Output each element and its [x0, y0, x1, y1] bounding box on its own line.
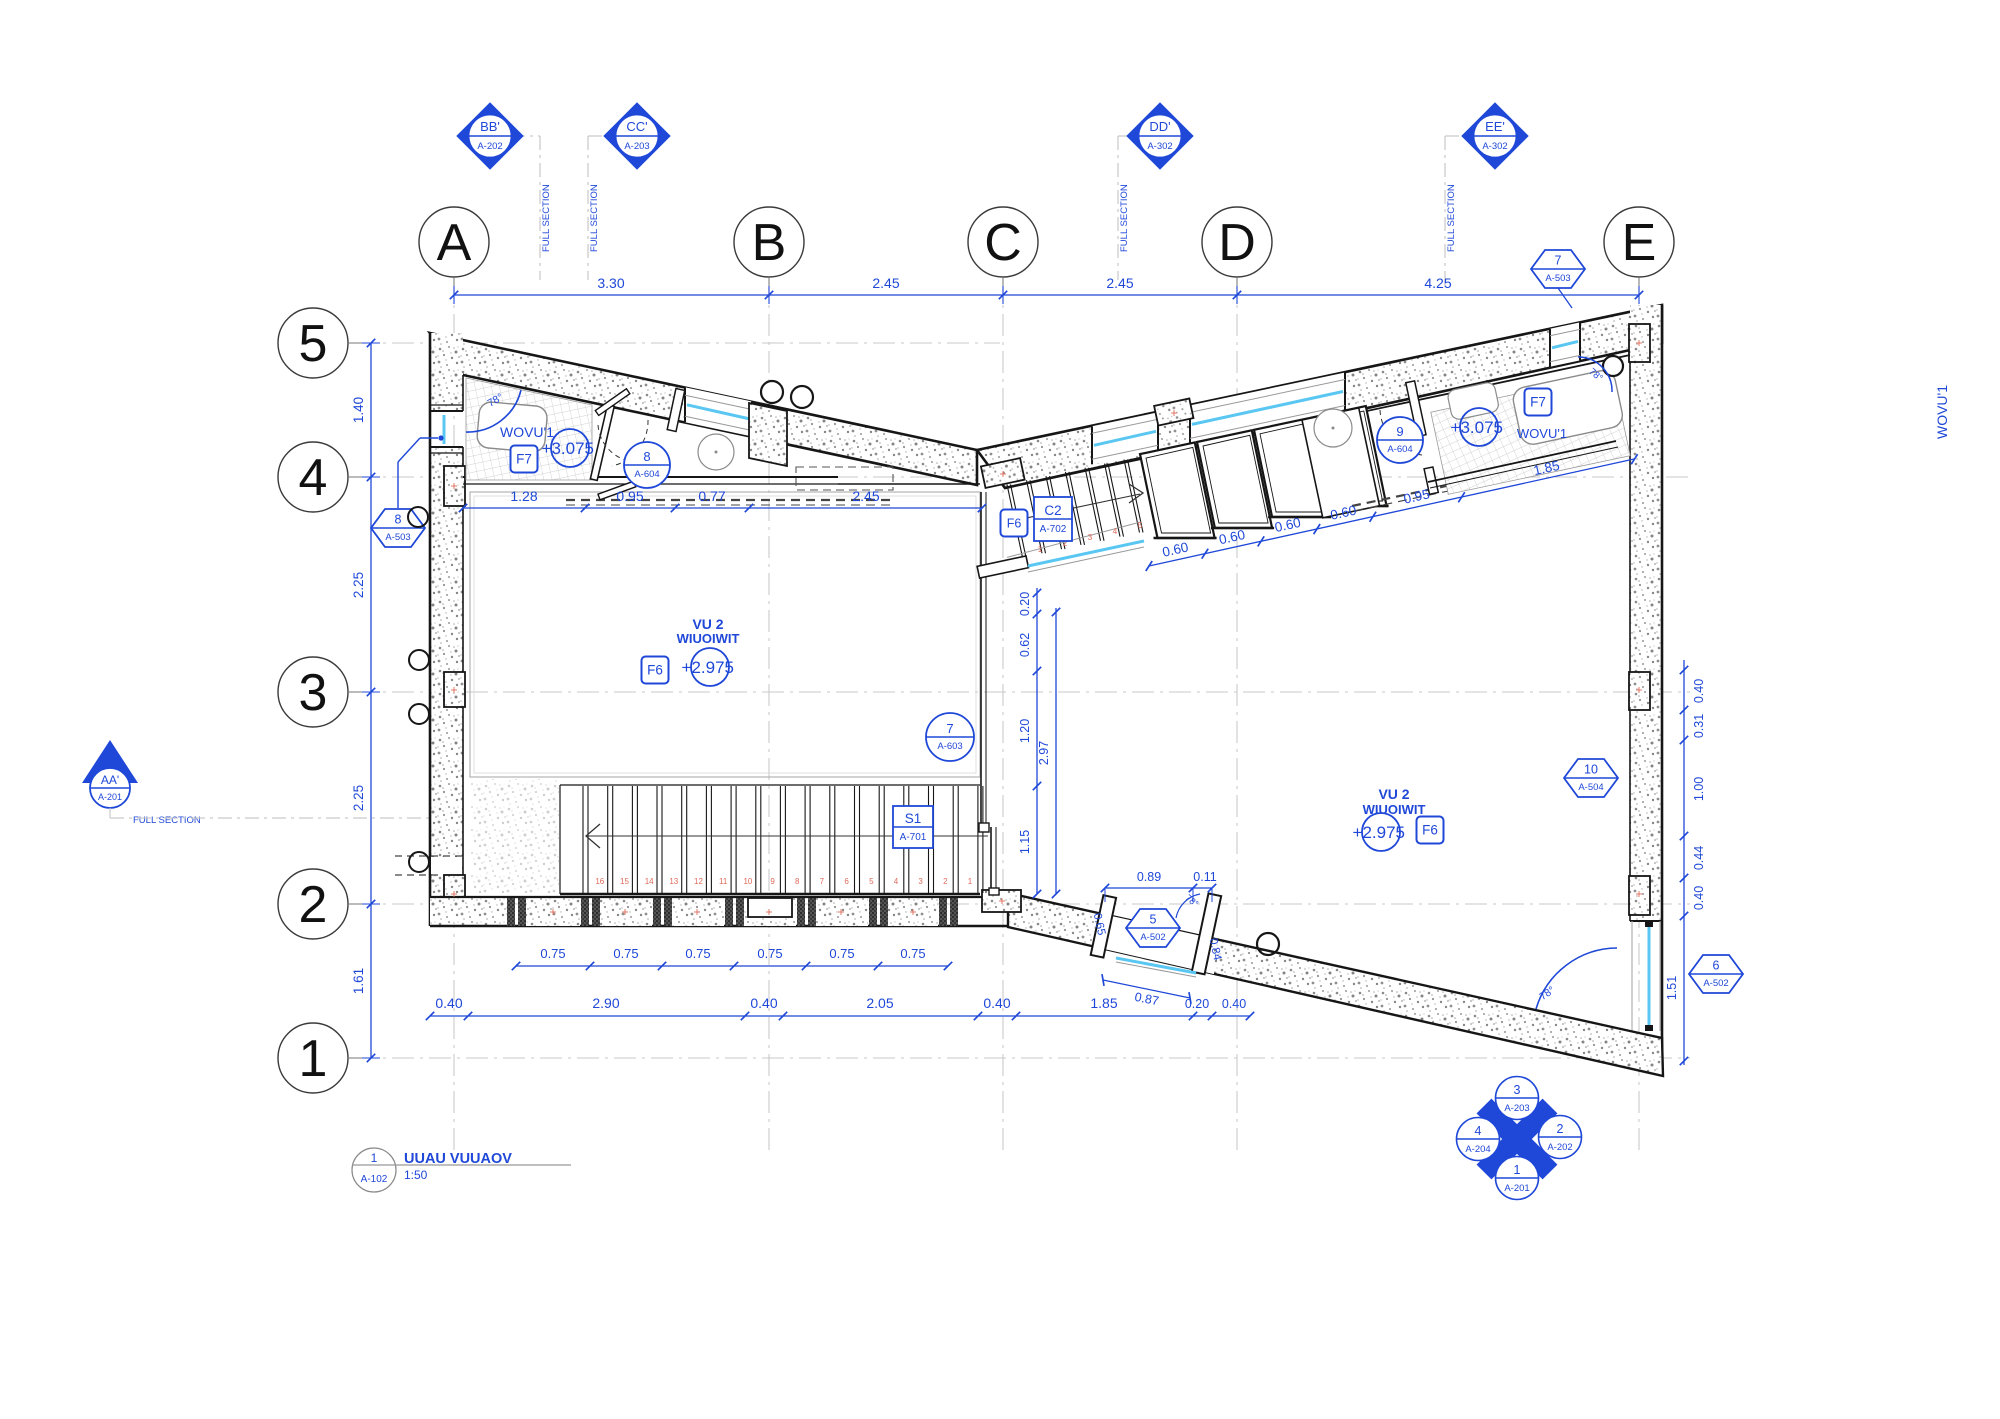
svg-text:1.20: 1.20 [1018, 719, 1032, 743]
svg-text:2: 2 [1557, 1122, 1564, 1136]
svg-text:0.75: 0.75 [540, 946, 565, 961]
svg-text:0.75: 0.75 [685, 946, 710, 961]
svg-text:0.89: 0.89 [1137, 870, 1161, 884]
svg-text:3: 3 [299, 664, 328, 722]
svg-text:WOVU'1: WOVU'1 [500, 424, 554, 440]
svg-text:0.40: 0.40 [1692, 679, 1706, 703]
svg-text:F7: F7 [516, 452, 532, 467]
svg-text:3: 3 [918, 877, 923, 886]
svg-text:A-203: A-203 [624, 141, 649, 152]
svg-text:10: 10 [743, 877, 752, 886]
svg-text:4: 4 [299, 449, 328, 507]
svg-text:10: 10 [1584, 763, 1598, 777]
svg-text:+2.975: +2.975 [1353, 823, 1405, 842]
svg-text:1: 1 [371, 1151, 378, 1165]
svg-text:+3.075: +3.075 [1451, 418, 1503, 437]
svg-text:2.90: 2.90 [592, 995, 619, 1011]
svg-text:1.00: 1.00 [1692, 777, 1706, 801]
svg-text:A-302: A-302 [1147, 141, 1172, 152]
svg-text:3: 3 [1088, 533, 1093, 542]
svg-text:2.97: 2.97 [1037, 741, 1051, 765]
svg-text:0.75: 0.75 [757, 946, 782, 961]
svg-text:WIUOIWIT: WIUOIWIT [677, 631, 740, 646]
svg-text:4: 4 [1475, 1124, 1482, 1138]
svg-text:1.85: 1.85 [1090, 995, 1117, 1011]
svg-text:A-604: A-604 [1387, 444, 1412, 455]
svg-text:A-502: A-502 [1140, 932, 1165, 943]
svg-text:A-203: A-203 [1504, 1103, 1529, 1114]
svg-text:F6: F6 [647, 663, 663, 678]
svg-text:1.61: 1.61 [351, 968, 366, 994]
svg-text:2.05: 2.05 [866, 995, 893, 1011]
svg-text:2.45: 2.45 [1106, 275, 1133, 291]
svg-text:A-604: A-604 [634, 469, 659, 480]
svg-text:VU 2: VU 2 [692, 616, 723, 632]
svg-text:7: 7 [946, 721, 953, 736]
svg-text:0.40: 0.40 [750, 995, 777, 1011]
svg-text:A-503: A-503 [385, 532, 410, 543]
svg-text:3.30: 3.30 [597, 275, 624, 291]
svg-text:9: 9 [770, 877, 775, 886]
svg-text:1.51: 1.51 [1665, 976, 1679, 1000]
svg-text:A-202: A-202 [477, 141, 502, 152]
svg-text:A: A [437, 214, 472, 272]
svg-text:A-701: A-701 [900, 832, 927, 843]
svg-text:4.25: 4.25 [1424, 275, 1451, 291]
svg-text:WOVU'1: WOVU'1 [1934, 385, 1950, 439]
svg-text:D: D [1218, 214, 1256, 272]
svg-text:0.77: 0.77 [698, 488, 725, 504]
svg-text:A-603: A-603 [937, 741, 962, 752]
svg-text:1.40: 1.40 [351, 397, 366, 423]
svg-text:A-201: A-201 [98, 792, 122, 802]
svg-text:7: 7 [820, 877, 825, 886]
svg-text:F6: F6 [1422, 823, 1438, 838]
svg-text:C: C [984, 214, 1022, 272]
svg-text:1: 1 [1514, 1163, 1521, 1177]
svg-text:CC': CC' [626, 119, 647, 134]
svg-text:0.40: 0.40 [1692, 886, 1706, 910]
svg-text:VU 2: VU 2 [1378, 786, 1409, 802]
svg-text:0.20: 0.20 [1018, 592, 1032, 616]
svg-text:14: 14 [645, 877, 654, 886]
svg-text:4: 4 [1113, 527, 1118, 536]
svg-text:0.95: 0.95 [616, 488, 643, 504]
svg-text:0.20: 0.20 [1185, 997, 1209, 1011]
svg-text:0.40: 0.40 [983, 995, 1010, 1011]
svg-text:0.11: 0.11 [1193, 870, 1216, 884]
svg-text:BB': BB' [480, 119, 500, 134]
svg-text:C2: C2 [1044, 503, 1061, 518]
svg-text:2.45: 2.45 [852, 488, 879, 504]
svg-text:S1: S1 [905, 811, 922, 826]
svg-text:13: 13 [669, 877, 678, 886]
svg-text:8: 8 [643, 449, 650, 464]
svg-text:UUAU VUUAOV: UUAU VUUAOV [404, 1151, 512, 1167]
svg-text:FULL SECTION: FULL SECTION [589, 184, 600, 252]
svg-text:8: 8 [795, 877, 800, 886]
svg-text:AA': AA' [101, 773, 119, 787]
svg-text:A-503: A-503 [1545, 273, 1570, 284]
svg-text:6: 6 [1713, 959, 1720, 973]
svg-text:4: 4 [894, 877, 899, 886]
svg-text:1: 1 [968, 877, 973, 886]
svg-text:0.75: 0.75 [829, 946, 854, 961]
svg-text:2: 2 [943, 877, 948, 886]
svg-text:2.45: 2.45 [872, 275, 899, 291]
svg-text:7: 7 [1555, 254, 1562, 268]
svg-text:A-702: A-702 [1040, 524, 1067, 535]
svg-text:1:50: 1:50 [404, 1168, 428, 1182]
svg-text:A-204: A-204 [1465, 1144, 1490, 1155]
svg-text:0.62: 0.62 [1018, 633, 1032, 657]
svg-text:5: 5 [299, 315, 328, 373]
svg-text:A-502: A-502 [1703, 978, 1728, 989]
svg-text:F7: F7 [1530, 395, 1546, 410]
svg-text:5: 5 [1150, 913, 1157, 927]
svg-text:0.31: 0.31 [1692, 714, 1706, 738]
svg-text:12: 12 [694, 877, 703, 886]
svg-text:A-302: A-302 [1482, 141, 1507, 152]
svg-text:3: 3 [1514, 1083, 1521, 1097]
svg-text:5: 5 [1138, 521, 1143, 530]
svg-text:1.15: 1.15 [1018, 830, 1032, 854]
svg-text:B: B [752, 214, 787, 272]
svg-text:1.28: 1.28 [510, 488, 537, 504]
svg-text:FULL SECTION: FULL SECTION [133, 815, 201, 826]
svg-text:WOVU'1: WOVU'1 [1517, 426, 1567, 441]
svg-text:2: 2 [299, 876, 328, 934]
svg-text:16: 16 [595, 877, 604, 886]
svg-text:F6: F6 [1007, 517, 1022, 531]
svg-text:0.44: 0.44 [1692, 846, 1706, 870]
svg-text:5: 5 [869, 877, 874, 886]
svg-text:6: 6 [844, 877, 849, 886]
svg-text:EE': EE' [1485, 119, 1505, 134]
svg-text:15: 15 [620, 877, 629, 886]
svg-text:0.40: 0.40 [1222, 997, 1246, 1011]
svg-text:FULL SECTION: FULL SECTION [541, 184, 552, 252]
svg-text:1: 1 [299, 1030, 328, 1088]
svg-text:2.25: 2.25 [351, 785, 366, 811]
svg-text:+2.975: +2.975 [682, 658, 734, 677]
svg-text:A-202: A-202 [1547, 1142, 1572, 1153]
svg-text:8: 8 [395, 513, 402, 527]
svg-text:FULL SECTION: FULL SECTION [1446, 184, 1457, 252]
svg-text:A-102: A-102 [361, 1174, 388, 1185]
svg-text:DD': DD' [1149, 119, 1170, 134]
svg-text:FULL SECTION: FULL SECTION [1119, 184, 1130, 252]
svg-text:11: 11 [719, 877, 728, 886]
svg-text:E: E [1622, 214, 1657, 272]
svg-text:9: 9 [1396, 424, 1403, 439]
svg-text:+3.075: +3.075 [542, 439, 594, 458]
svg-text:0.75: 0.75 [613, 946, 638, 961]
svg-text:1: 1 [1038, 545, 1043, 554]
svg-text:0.75: 0.75 [900, 946, 925, 961]
svg-text:A-201: A-201 [1504, 1183, 1529, 1194]
svg-text:2.25: 2.25 [351, 572, 366, 598]
svg-text:0.40: 0.40 [435, 995, 462, 1011]
svg-text:A-504: A-504 [1578, 782, 1603, 793]
